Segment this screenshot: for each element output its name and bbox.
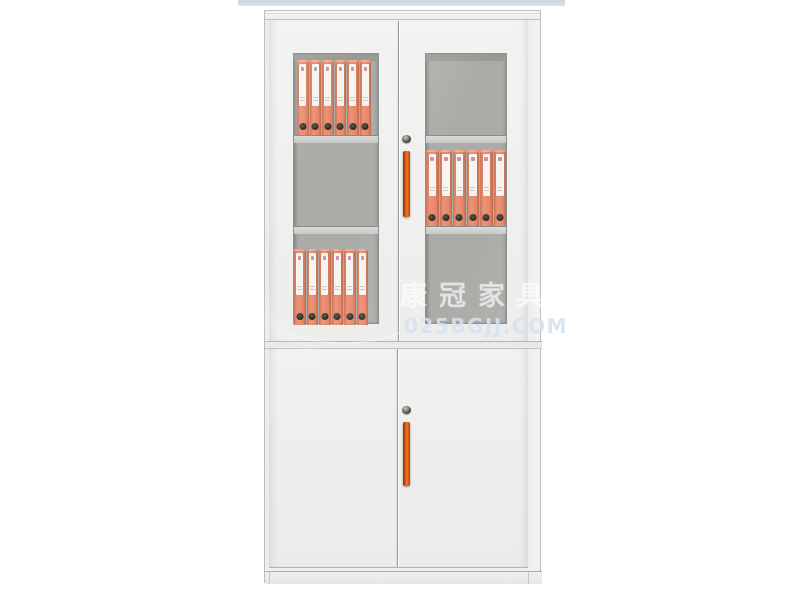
- binder: [310, 60, 322, 135]
- binder-label-text-lines: [443, 187, 448, 193]
- binder: [319, 249, 331, 325]
- binder-label-mark: [298, 256, 301, 260]
- binder-spine-label: [321, 253, 328, 296]
- lower-door-handle: [403, 422, 410, 486]
- binder-spine-label: [296, 253, 303, 296]
- binder-label-mark: [361, 256, 364, 260]
- binder-label-text-lines: [457, 187, 462, 193]
- binder-spine-label: [337, 64, 344, 106]
- watermark-brand-text: 康冠家具: [400, 274, 556, 313]
- binder-grip-hole-icon: [321, 313, 328, 320]
- binder-label-mark: [301, 67, 304, 71]
- binder-spine-label: [349, 64, 356, 106]
- binder-grip-hole-icon: [324, 123, 331, 130]
- binder-label-mark: [430, 157, 434, 161]
- binder-label-mark: [326, 67, 329, 71]
- binder-label-mark: [364, 67, 367, 71]
- binder: [344, 249, 356, 325]
- binder-label-text-lines: [350, 97, 355, 103]
- binder-label-mark: [484, 157, 488, 161]
- binder-label-mark: [471, 157, 475, 161]
- photo-canvas: 康冠家具 025BGJJ.COM: [0, 0, 800, 600]
- binder: [347, 60, 359, 135]
- binder: [440, 150, 453, 226]
- binder-label-text-lines: [300, 97, 305, 103]
- binder: [480, 150, 493, 226]
- binder: [294, 249, 306, 325]
- binder-label-text-lines: [335, 286, 340, 292]
- binder-label-mark: [351, 67, 354, 71]
- binder: [453, 150, 466, 226]
- binder-label-text-lines: [338, 97, 343, 103]
- binder-label-mark: [457, 157, 461, 161]
- binder: [467, 150, 480, 226]
- binder-spine-label: [362, 64, 369, 106]
- binder-grip-hole-icon: [456, 214, 463, 221]
- binder-spine-label: [334, 253, 341, 296]
- cabinet-top-panel: [265, 11, 540, 20]
- binder-grip-hole-icon: [334, 313, 341, 320]
- glass-window-left: [293, 53, 379, 324]
- binder: [335, 60, 347, 135]
- binder-spine-label: [312, 64, 319, 106]
- binder-label-mark: [311, 256, 314, 260]
- binder-label-text-lines: [430, 187, 435, 193]
- binder-label-text-lines: [347, 286, 352, 292]
- binder-grip-hole-icon: [299, 123, 306, 130]
- binder-spine-label: [429, 154, 437, 197]
- binder-spine-label: [309, 253, 316, 296]
- binder-grip-hole-icon: [359, 313, 366, 320]
- lower-door-lock-icon: [402, 406, 411, 414]
- top-blue-strip: [238, 0, 565, 6]
- binder: [307, 249, 319, 325]
- binder-grip-hole-icon: [296, 313, 303, 320]
- binder-label-text-lines: [310, 286, 315, 292]
- binder: [322, 60, 334, 135]
- lower-door-seam: [397, 349, 398, 567]
- binder-grip-hole-icon: [346, 313, 353, 320]
- binder-label-mark: [323, 256, 326, 260]
- binder-label-text-lines: [497, 187, 502, 193]
- shelf-edge: [426, 226, 506, 234]
- shelf-edge: [294, 135, 378, 143]
- interior-top-shadow: [426, 54, 506, 61]
- watermark-url-text: 025BGJJ.COM: [404, 314, 568, 338]
- binder-label-mark: [314, 67, 317, 71]
- binder: [360, 60, 372, 135]
- binder-grip-hole-icon: [362, 123, 369, 130]
- shelf-edge: [426, 135, 506, 143]
- binders-shelf-left-bottom: [294, 249, 368, 325]
- binders-shelf-left-top: [297, 60, 371, 135]
- binder-grip-hole-icon: [496, 214, 503, 221]
- binder-label-text-lines: [363, 97, 368, 103]
- binder-grip-hole-icon: [429, 214, 436, 221]
- mid-divider-panel: [265, 341, 542, 349]
- binder-grip-hole-icon: [309, 313, 316, 320]
- binder-spine-label: [299, 64, 306, 106]
- binder: [426, 150, 439, 226]
- binder-spine-label: [483, 154, 491, 197]
- binder-grip-hole-icon: [337, 123, 344, 130]
- binders-shelf-right-middle: [426, 150, 506, 226]
- binder-label-mark: [348, 256, 351, 260]
- binder-label-text-lines: [360, 286, 365, 292]
- binder-label-mark: [339, 67, 342, 71]
- binder-label-text-lines: [484, 187, 489, 193]
- binder-grip-hole-icon: [469, 214, 476, 221]
- binder-spine-label: [359, 253, 366, 296]
- upper-door-handle: [403, 151, 410, 217]
- binder: [357, 249, 369, 325]
- binder-grip-hole-icon: [442, 214, 449, 221]
- binder: [494, 150, 507, 226]
- binder-label-text-lines: [322, 286, 327, 292]
- binder-label-mark: [336, 256, 339, 260]
- upper-door-lock-icon: [402, 135, 411, 143]
- binder-spine-label: [346, 253, 353, 296]
- binder-grip-hole-icon: [349, 123, 356, 130]
- binder: [332, 249, 344, 325]
- binder-spine-label: [469, 154, 477, 197]
- lower-door-section: [269, 349, 528, 568]
- binder-label-mark: [498, 157, 502, 161]
- upper-door-seam: [398, 21, 399, 341]
- binder-spine-label: [496, 154, 504, 197]
- cabinet-base: [265, 571, 542, 584]
- binder-spine-label: [324, 64, 331, 106]
- binder-spine-label: [442, 154, 450, 197]
- binder-label-text-lines: [325, 97, 330, 103]
- shelf-edge: [294, 226, 378, 234]
- binder-label-mark: [444, 157, 448, 161]
- binder-label-text-lines: [297, 286, 302, 292]
- binder-label-text-lines: [313, 97, 318, 103]
- binder: [297, 60, 309, 135]
- binder-grip-hole-icon: [312, 123, 319, 130]
- binder-spine-label: [456, 154, 464, 197]
- binder-grip-hole-icon: [483, 214, 490, 221]
- binder-label-text-lines: [470, 187, 475, 193]
